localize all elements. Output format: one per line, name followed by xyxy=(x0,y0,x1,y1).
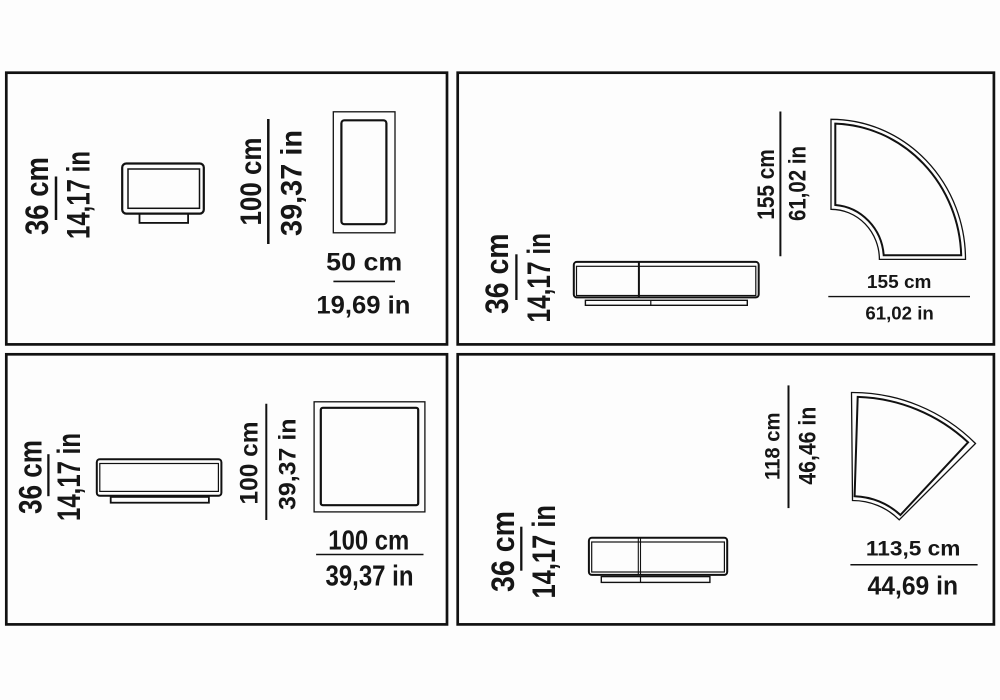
svg-text:14,17 in: 14,17 in xyxy=(526,505,562,599)
svg-text:39,37 in: 39,37 in xyxy=(276,130,309,236)
svg-text:36 cm: 36 cm xyxy=(485,511,521,592)
svg-text:14,17 in: 14,17 in xyxy=(521,233,557,323)
svg-text:44,69 in: 44,69 in xyxy=(868,572,959,600)
svg-text:100 cm: 100 cm xyxy=(328,525,409,556)
svg-text:14,17 in: 14,17 in xyxy=(61,151,97,239)
svg-text:61,02 in: 61,02 in xyxy=(865,302,934,323)
svg-text:155 cm: 155 cm xyxy=(753,149,780,220)
svg-text:50 cm: 50 cm xyxy=(326,249,402,277)
svg-text:155 cm: 155 cm xyxy=(867,271,932,292)
svg-text:46,46 in: 46,46 in xyxy=(795,407,822,485)
svg-text:113,5 cm: 113,5 cm xyxy=(866,537,961,561)
svg-text:100 cm: 100 cm xyxy=(236,422,264,505)
svg-text:39,37 in: 39,37 in xyxy=(275,419,302,511)
svg-text:39,37 in: 39,37 in xyxy=(326,561,414,593)
svg-text:14,17 in: 14,17 in xyxy=(51,433,87,521)
svg-text:19,69 in: 19,69 in xyxy=(316,291,410,319)
svg-text:118 cm: 118 cm xyxy=(761,413,785,481)
svg-text:36 cm: 36 cm xyxy=(19,157,55,235)
svg-text:36 cm: 36 cm xyxy=(13,440,49,514)
svg-text:100 cm: 100 cm xyxy=(235,138,268,226)
svg-text:36 cm: 36 cm xyxy=(479,234,515,315)
svg-text:61,02 in: 61,02 in xyxy=(785,146,812,221)
